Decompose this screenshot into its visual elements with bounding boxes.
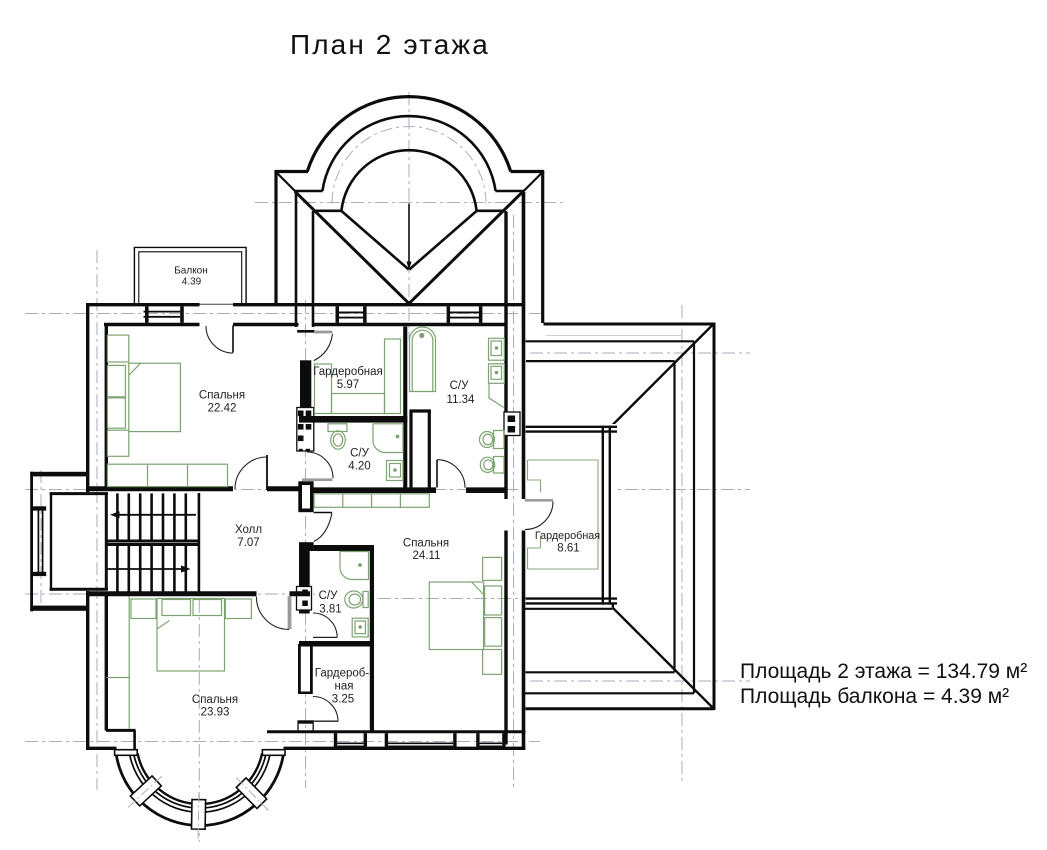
svg-text:ная: ная [335,681,354,693]
svg-text:С/У: С/У [350,448,370,460]
svg-text:С/У: С/У [319,590,339,602]
svg-text:7.07: 7.07 [237,537,259,549]
svg-text:24.11: 24.11 [413,550,441,562]
svg-text:Гардеробная: Гардеробная [535,530,600,542]
svg-text:Площадь 2 этажа = 134.79 м²: Площадь 2 этажа = 134.79 м² [740,660,1027,683]
svg-text:3.81: 3.81 [319,604,341,616]
svg-text:8.61: 8.61 [557,543,579,555]
svg-text:11.34: 11.34 [447,394,476,406]
svg-text:23.93: 23.93 [201,706,230,718]
svg-text:5.97: 5.97 [337,379,359,391]
svg-text:Холл: Холл [235,524,262,536]
svg-text:Площадь балкона = 4.39 м²: Площадь балкона = 4.39 м² [740,685,1009,708]
svg-text:4.20: 4.20 [348,461,370,473]
svg-text:4.39: 4.39 [182,277,202,288]
svg-text:22.42: 22.42 [208,402,237,414]
svg-text:3.25: 3.25 [332,694,354,706]
svg-text:Спальня: Спальня [192,694,238,706]
svg-text:С/У: С/У [450,380,470,392]
svg-text:Балкон: Балкон [174,265,208,276]
svg-text:План 2 этажа: План 2 этажа [290,29,490,60]
svg-text:Спальня: Спальня [199,389,245,401]
svg-text:Спальня: Спальня [403,538,449,550]
svg-text:Гардероб-: Гардероб- [315,668,370,680]
svg-text:Гардеробная: Гардеробная [313,366,383,378]
